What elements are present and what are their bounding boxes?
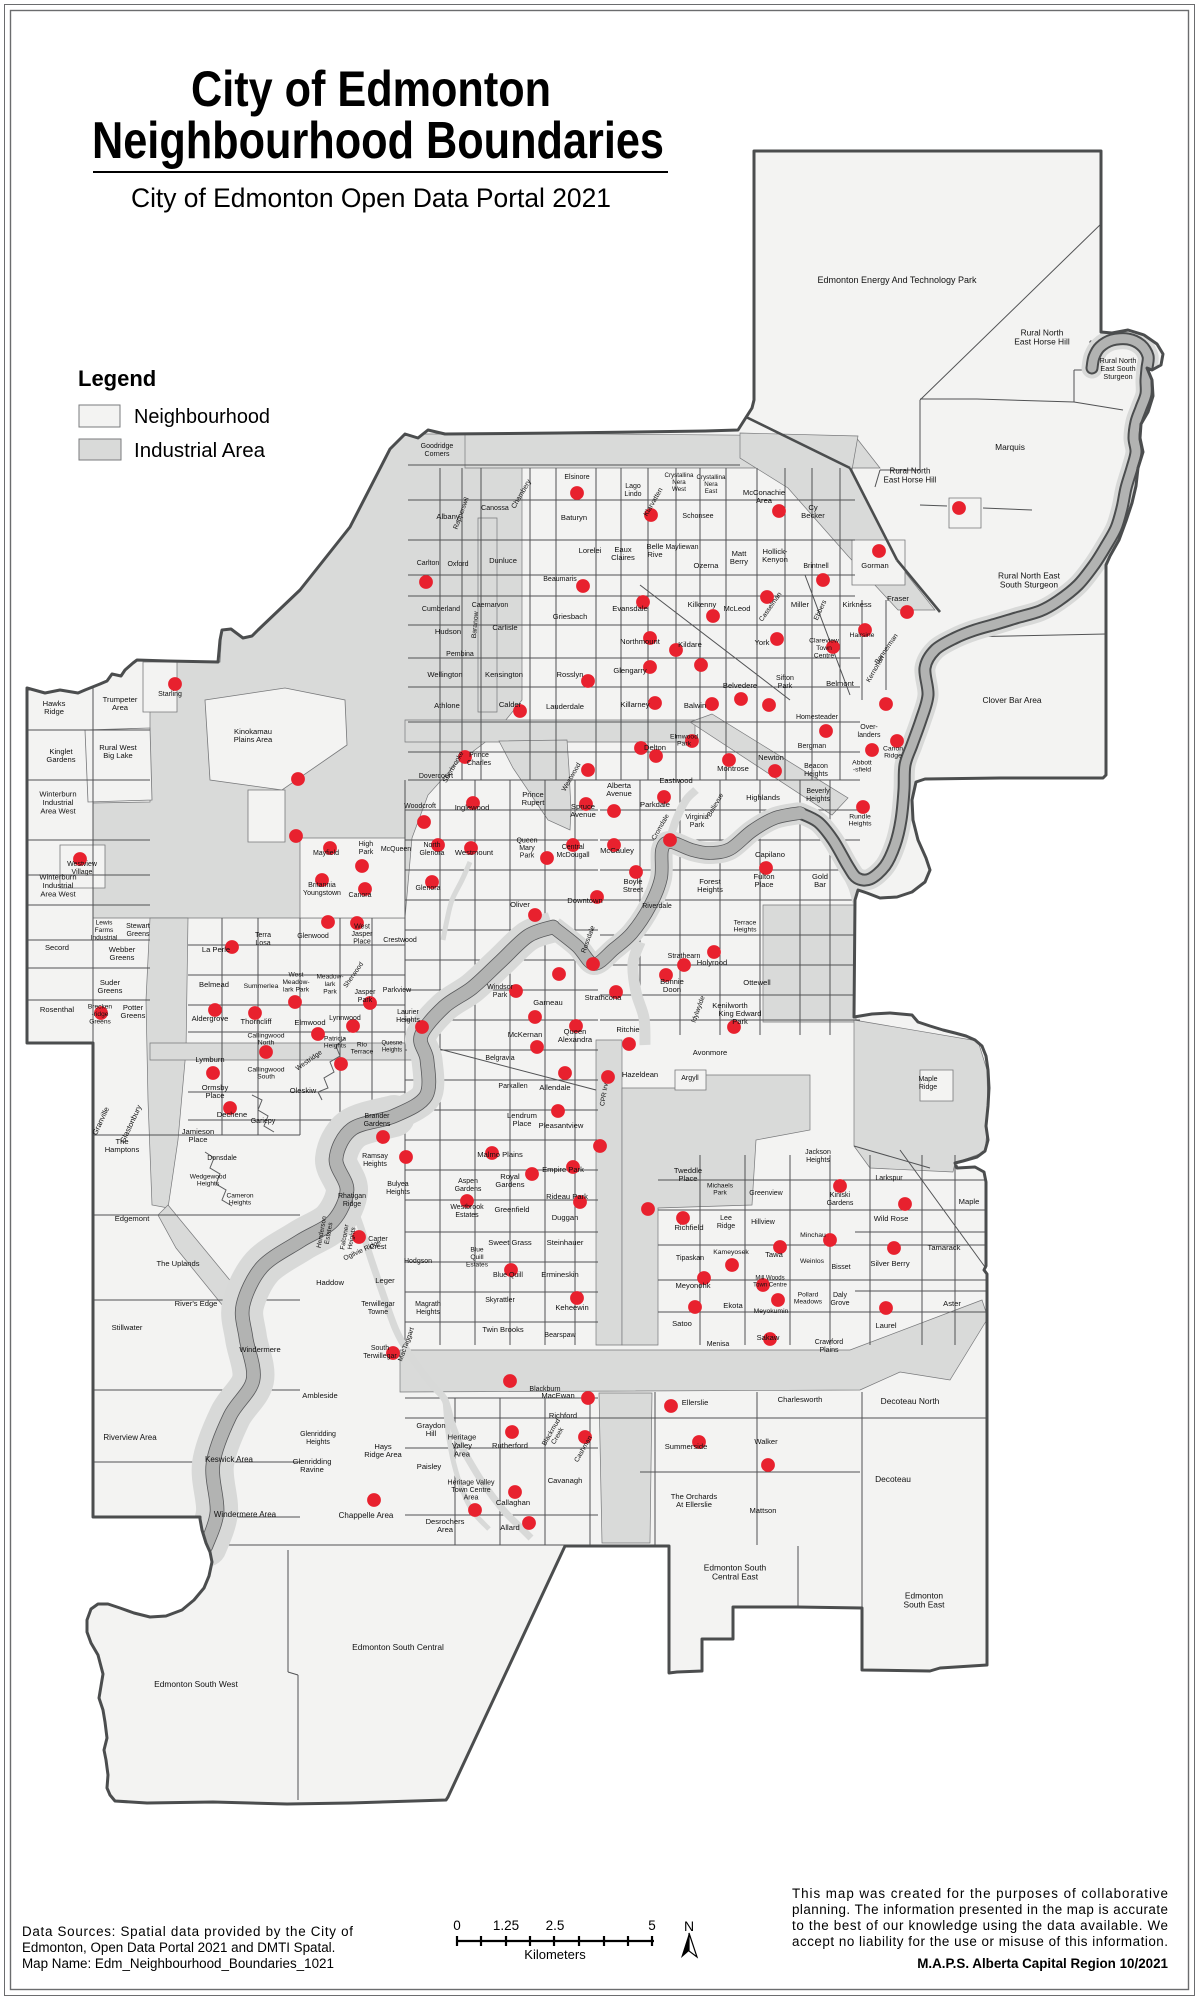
svg-text:EdmontonSouth East: EdmontonSouth East	[904, 1590, 946, 1609]
svg-text:Belgravia: Belgravia	[485, 1055, 514, 1062]
svg-text:Keheewin: Keheewin	[555, 1303, 588, 1312]
svg-text:Hazeldean: Hazeldean	[622, 1070, 658, 1079]
svg-text:Allard: Allard	[500, 1523, 519, 1532]
svg-text:Capilano: Capilano	[755, 850, 785, 859]
svg-text:Ellerslie: Ellerslie	[682, 1398, 709, 1407]
svg-text:MapleRidge: MapleRidge	[918, 1076, 937, 1091]
svg-text:Satoo: Satoo	[672, 1319, 692, 1328]
svg-text:Greenfield: Greenfield	[494, 1205, 529, 1214]
svg-text:Minchau: Minchau	[800, 1232, 826, 1239]
svg-text:Laurel: Laurel	[875, 1321, 896, 1330]
svg-text:Gariepy: Gariepy	[251, 1118, 276, 1125]
svg-text:Kilkenny: Kilkenny	[688, 600, 717, 609]
svg-text:Argyll: Argyll	[681, 1075, 699, 1082]
svg-text:Riverdale: Riverdale	[642, 903, 672, 910]
svg-text:Empire Park: Empire Park	[542, 1165, 584, 1174]
svg-text:GoldBar: GoldBar	[812, 872, 828, 889]
svg-text:Cumberland: Cumberland	[422, 606, 460, 613]
svg-text:Rosenthal: Rosenthal	[40, 1005, 75, 1014]
svg-text:Mattson: Mattson	[749, 1506, 776, 1515]
svg-text:The Uplands: The Uplands	[156, 1259, 199, 1268]
svg-text:Callaghan: Callaghan	[496, 1498, 530, 1507]
svg-text:Richford: Richford	[549, 1411, 577, 1420]
svg-text:QuesneHeights: QuesneHeights	[381, 1041, 403, 1054]
svg-text:CameronHeights: CameronHeights	[226, 1192, 253, 1206]
svg-text:Canora: Canora	[349, 892, 372, 899]
svg-text:Data Sources: Spatial data pro: Data Sources: Spatial data provided by t…	[22, 1924, 353, 1939]
svg-text:0: 0	[453, 1918, 461, 1933]
svg-text:Elmwood: Elmwood	[294, 1018, 325, 1027]
svg-text:Aster: Aster	[943, 1299, 961, 1308]
svg-text:KingletGardens: KingletGardens	[46, 747, 75, 764]
svg-text:SiftonPark: SiftonPark	[776, 675, 794, 690]
svg-text:Mayliewan: Mayliewan	[665, 544, 698, 551]
svg-text:Duggan: Duggan	[552, 1213, 579, 1222]
svg-text:LaurierHeights: LaurierHeights	[396, 1009, 420, 1024]
svg-text:Rural NorthEast Horse Hill: Rural NorthEast Horse Hill	[1014, 327, 1070, 346]
svg-text:BelleRive: BelleRive	[647, 542, 664, 559]
svg-text:WebberGreens: WebberGreens	[109, 945, 136, 962]
svg-text:Edgemont: Edgemont	[115, 1214, 151, 1223]
svg-text:Lynnwood: Lynnwood	[329, 1015, 361, 1022]
svg-text:Crestwood: Crestwood	[383, 937, 417, 944]
svg-text:Blue Quill: Blue Quill	[493, 1272, 523, 1279]
svg-text:Lymburn: Lymburn	[195, 1055, 224, 1064]
svg-text:Rosslyn: Rosslyn	[556, 670, 583, 679]
svg-text:AspenGardens: AspenGardens	[455, 1178, 482, 1193]
svg-text:Brintnell: Brintnell	[803, 563, 829, 570]
svg-text:Kensington: Kensington	[485, 670, 523, 679]
svg-text:BranderGardens: BranderGardens	[364, 1113, 391, 1128]
svg-text:PrinceRupert: PrinceRupert	[522, 790, 546, 807]
svg-text:BulyeaHeights: BulyeaHeights	[386, 1181, 410, 1196]
svg-text:Calder: Calder	[499, 700, 522, 709]
svg-text:CanonRidge: CanonRidge	[883, 745, 903, 759]
svg-text:Kildare: Kildare	[678, 640, 702, 649]
svg-text:Parkview: Parkview	[383, 987, 412, 994]
svg-text:City of Edmonton: City of Edmonton	[191, 61, 551, 117]
svg-text:McKernan: McKernan	[508, 1030, 543, 1039]
svg-text:City of Edmonton Open Data Por: City of Edmonton Open Data Portal 2021	[131, 183, 611, 213]
svg-text:Decoteau: Decoteau	[875, 1474, 911, 1484]
svg-text:Lorelei: Lorelei	[579, 546, 602, 555]
svg-text:Kameyosek: Kameyosek	[713, 1249, 749, 1256]
svg-text:Fraser: Fraser	[887, 594, 909, 603]
svg-text:Riverview Area: Riverview Area	[103, 1433, 157, 1442]
svg-text:BonnieDoon: BonnieDoon	[660, 977, 684, 994]
svg-text:Rural NorthEast Horse Hill: Rural NorthEast Horse Hill	[884, 467, 937, 485]
svg-text:Baturyn: Baturyn	[561, 513, 587, 522]
svg-text:GoodridgeCorners: GoodridgeCorners	[421, 443, 454, 458]
svg-text:Wellington: Wellington	[427, 670, 462, 679]
svg-text:Montrose: Montrose	[717, 764, 749, 773]
svg-text:Walker: Walker	[754, 1437, 778, 1446]
svg-text:to the best of our knowledge u: to the best of our knowledge using the d…	[792, 1918, 1168, 1933]
svg-text:AlbertaAvenue: AlbertaAvenue	[606, 781, 632, 798]
svg-text:Rideau Park: Rideau Park	[546, 1192, 588, 1201]
svg-text:Windermere Area: Windermere Area	[214, 1510, 277, 1519]
svg-text:Mayfield: Mayfield	[313, 850, 339, 857]
svg-text:Avonmore: Avonmore	[693, 1048, 727, 1057]
svg-text:Map Name: Edm_Neighbourhood_Bo: Map Name: Edm_Neighbourhood_Boundaries_1…	[22, 1956, 334, 1971]
svg-text:Northmount: Northmount	[620, 637, 661, 646]
svg-text:Carlton: Carlton	[417, 560, 440, 567]
svg-text:Oleskiw: Oleskiw	[290, 1086, 317, 1095]
svg-text:Rural North EastSouth Sturgeon: Rural North EastSouth Sturgeon	[998, 570, 1061, 589]
svg-text:Elsinore: Elsinore	[564, 474, 589, 481]
svg-text:Charlesworth: Charlesworth	[778, 1395, 823, 1404]
svg-text:PotterGreens: PotterGreens	[121, 1003, 146, 1020]
svg-text:Holyrood: Holyrood	[697, 958, 727, 967]
svg-text:Beaumaris: Beaumaris	[543, 576, 577, 583]
svg-text:Blackburn: Blackburn	[529, 1386, 560, 1393]
svg-text:Edmonton, Open Data Portal 202: Edmonton, Open Data Portal 2021 and DMTI…	[22, 1940, 335, 1955]
svg-text:Malmo Plains: Malmo Plains	[477, 1150, 523, 1159]
svg-text:Starling: Starling	[158, 691, 182, 698]
svg-text:Greenview: Greenview	[749, 1190, 783, 1197]
svg-text:StewartGreens: StewartGreens	[126, 923, 150, 938]
svg-text:Sweet Grass: Sweet Grass	[488, 1238, 532, 1247]
svg-text:Hodgson: Hodgson	[404, 1258, 432, 1265]
svg-text:BeverlyHeights: BeverlyHeights	[806, 788, 830, 803]
svg-text:KinokamauPlains Area: KinokamauPlains Area	[234, 727, 273, 744]
svg-text:N: N	[684, 1918, 694, 1934]
svg-text:Neighbourhood: Neighbourhood	[134, 406, 270, 428]
svg-text:SuderGreens: SuderGreens	[98, 978, 123, 995]
svg-text:Pembina: Pembina	[446, 651, 474, 658]
svg-text:Haddow: Haddow	[316, 1278, 344, 1287]
svg-text:Larkspur: Larkspur	[875, 1175, 903, 1182]
svg-text:Leger: Leger	[375, 1276, 395, 1285]
svg-text:Eastwood: Eastwood	[659, 776, 692, 785]
svg-text:Parkdale: Parkdale	[640, 800, 670, 809]
svg-text:Gorman: Gorman	[861, 561, 888, 570]
svg-text:MagrathHeights: MagrathHeights	[415, 1301, 441, 1316]
svg-text:Belmead: Belmead	[199, 980, 229, 989]
svg-text:Canossa: Canossa	[481, 505, 509, 512]
svg-text:Dechene: Dechene	[217, 1110, 247, 1119]
svg-text:Decoteau North: Decoteau North	[881, 1396, 940, 1406]
svg-text:Edmonton Energy And Technology: Edmonton Energy And Technology Park	[818, 275, 977, 285]
svg-text:TerraLosa: TerraLosa	[255, 932, 271, 947]
svg-text:Inglewood: Inglewood	[455, 803, 490, 812]
svg-text:Richfield: Richfield	[674, 1223, 703, 1232]
svg-text:BoyleStreet: BoyleStreet	[623, 877, 644, 894]
svg-text:Athlone: Athlone	[434, 701, 460, 710]
svg-text:Bergman: Bergman	[798, 743, 827, 750]
svg-text:Balwin: Balwin	[684, 701, 706, 710]
svg-text:accept no liability for the us: accept no liability for the use or misus…	[792, 1934, 1168, 1949]
svg-text:Steinhauer: Steinhauer	[547, 1238, 584, 1247]
svg-text:Stillwater: Stillwater	[112, 1323, 143, 1332]
svg-text:WestJasperPlace: WestJasperPlace	[351, 923, 373, 945]
svg-text:JacksonHeights: JacksonHeights	[805, 1149, 831, 1164]
svg-text:The OrchardsAt Ellerslie: The OrchardsAt Ellerslie	[671, 1492, 718, 1509]
svg-text:1.25: 1.25	[493, 1918, 519, 1933]
svg-text:Rural NorthEast SouthSturgeon: Rural NorthEast SouthSturgeon	[1100, 356, 1137, 381]
svg-text:Secord: Secord	[45, 943, 69, 952]
svg-text:Ekota: Ekota	[723, 1301, 743, 1310]
svg-text:McCauley: McCauley	[600, 846, 634, 855]
svg-text:MattBerry: MattBerry	[730, 549, 748, 566]
svg-text:Hairsine: Hairsine	[850, 632, 875, 639]
svg-text:Griesbach: Griesbach	[553, 612, 588, 621]
svg-text:Ermineskin: Ermineskin	[541, 1270, 579, 1279]
svg-text:Edmonton South West: Edmonton South West	[154, 1679, 238, 1689]
svg-text:Strathearn: Strathearn	[668, 953, 701, 960]
svg-text:HawksRidge: HawksRidge	[43, 699, 66, 716]
svg-text:WinterburnIndustrialArea West: WinterburnIndustrialArea West	[39, 790, 76, 816]
svg-text:Ottewell: Ottewell	[743, 978, 771, 987]
svg-text:Belmont: Belmont	[826, 679, 855, 688]
svg-text:Tipaskan: Tipaskan	[676, 1255, 704, 1262]
svg-text:Glenwood: Glenwood	[297, 933, 329, 940]
svg-text:Meyokumin: Meyokumin	[754, 1308, 789, 1315]
svg-text:Oliver: Oliver	[510, 900, 530, 909]
svg-text:Meyonohk: Meyonohk	[675, 1281, 710, 1290]
svg-text:Windermere: Windermere	[239, 1345, 280, 1354]
svg-text:Hollick-Kenyon: Hollick-Kenyon	[762, 547, 788, 564]
svg-text:Summerside: Summerside	[665, 1442, 708, 1451]
svg-text:Chappelle Area: Chappelle Area	[339, 1511, 394, 1520]
svg-text:Homesteader: Homesteader	[796, 714, 839, 721]
svg-text:Menisa: Menisa	[707, 1341, 730, 1348]
svg-text:KiniskiGardens: KiniskiGardens	[827, 1192, 854, 1207]
svg-text:Edmonton SouthCentral East: Edmonton SouthCentral East	[704, 1562, 767, 1581]
svg-text:EauxClaires: EauxClaires	[611, 545, 635, 562]
svg-text:Paisley: Paisley	[417, 1462, 442, 1471]
svg-text:PatriciaHeights: PatriciaHeights	[324, 1035, 347, 1049]
svg-text:OrmsbyPlace: OrmsbyPlace	[202, 1083, 229, 1100]
svg-text:Maple: Maple	[959, 1197, 980, 1206]
svg-text:DalyGrove: DalyGrove	[830, 1292, 849, 1307]
svg-text:Oxford: Oxford	[447, 561, 468, 568]
svg-text:Clover Bar Area: Clover Bar Area	[982, 695, 1041, 705]
svg-text:Weinlos: Weinlos	[800, 1258, 825, 1265]
svg-text:Rural WestBig Lake: Rural WestBig Lake	[99, 743, 137, 760]
svg-text:Westmount: Westmount	[455, 848, 494, 857]
svg-text:Summerlea: Summerlea	[244, 983, 279, 990]
svg-text:LagoLindo: LagoLindo	[624, 483, 641, 498]
svg-text:York: York	[755, 638, 770, 647]
svg-text:Lauderdale: Lauderdale	[546, 702, 584, 711]
svg-text:Mill WoodsTown Centre: Mill WoodsTown Centre	[753, 1276, 787, 1289]
svg-text:FultonPlace: FultonPlace	[753, 872, 774, 889]
svg-text:Schonsee: Schonsee	[682, 513, 713, 520]
svg-text:Edmonton South Central: Edmonton South Central	[352, 1642, 444, 1652]
svg-text:Ambleside: Ambleside	[302, 1391, 337, 1400]
svg-text:Twin Brooks: Twin Brooks	[482, 1325, 524, 1334]
svg-text:Highlands: Highlands	[746, 793, 780, 802]
svg-text:Allendale: Allendale	[539, 1083, 570, 1092]
svg-text:River's Edge: River's Edge	[175, 1299, 218, 1308]
svg-text:Pleasantview: Pleasantview	[539, 1121, 584, 1130]
svg-text:Industrial Area: Industrial Area	[134, 440, 266, 462]
svg-text:2.5: 2.5	[546, 1918, 565, 1933]
svg-text:Parkallen: Parkallen	[498, 1083, 527, 1090]
svg-text:planning. The information pres: planning. The information presented in t…	[792, 1902, 1168, 1917]
svg-text:Bearspaw: Bearspaw	[544, 1332, 576, 1339]
svg-text:Cavanagh: Cavanagh	[548, 1476, 583, 1485]
svg-text:Evansdale: Evansdale	[612, 604, 647, 613]
svg-text:Silver Berry: Silver Berry	[870, 1259, 909, 1268]
svg-text:Ritchie: Ritchie	[616, 1025, 639, 1034]
svg-text:Downtown: Downtown	[567, 896, 602, 905]
svg-text:Dunluce: Dunluce	[489, 556, 517, 565]
svg-text:Killarney: Killarney	[620, 700, 649, 709]
svg-text:Strathcona: Strathcona	[585, 993, 623, 1002]
svg-text:McQueen: McQueen	[381, 846, 411, 853]
svg-text:Ozerna: Ozerna	[694, 561, 720, 570]
svg-text:M.A.P.S. Alberta Capital Regio: M.A.P.S. Alberta Capital Region 10/2021	[917, 1956, 1168, 1971]
svg-text:Wild Rose: Wild Rose	[874, 1214, 909, 1223]
svg-text:Newton: Newton	[758, 753, 784, 762]
svg-text:Legend: Legend	[78, 366, 156, 391]
svg-text:Donsdale: Donsdale	[207, 1155, 237, 1162]
svg-text:Garneau: Garneau	[533, 998, 563, 1007]
svg-text:5: 5	[648, 1918, 656, 1933]
svg-text:Hillview: Hillview	[751, 1219, 776, 1226]
svg-text:Skyrattler: Skyrattler	[485, 1297, 515, 1304]
svg-text:BritanniaYoungstown: BritanniaYoungstown	[303, 882, 341, 897]
svg-text:Woodcroft: Woodcroft	[404, 803, 436, 810]
svg-text:Delton: Delton	[644, 743, 666, 752]
svg-text:Rutherford: Rutherford	[492, 1441, 528, 1450]
svg-text:Caernarvon: Caernarvon	[472, 602, 509, 609]
svg-text:RundleHeights: RundleHeights	[848, 813, 872, 827]
svg-text:WinterburnIndustrialArea West: WinterburnIndustrialArea West	[39, 873, 76, 899]
svg-text:Kirkness: Kirkness	[842, 600, 871, 609]
svg-text:Hudson: Hudson	[435, 627, 461, 636]
svg-text:ForestHeights: ForestHeights	[697, 877, 723, 894]
svg-text:Miller: Miller	[791, 600, 810, 609]
svg-text:Aldergrove: Aldergrove	[192, 1014, 229, 1023]
svg-text:Sakaw: Sakaw	[757, 1333, 780, 1342]
svg-text:HighPark: HighPark	[359, 841, 374, 856]
svg-text:RamsayHeights: RamsayHeights	[362, 1153, 388, 1168]
svg-text:Carlisle: Carlisle	[492, 623, 517, 632]
svg-text:TerraceHeights: TerraceHeights	[733, 919, 757, 933]
svg-text:Marquis: Marquis	[995, 442, 1025, 452]
svg-text:Bisset: Bisset	[831, 1264, 850, 1271]
svg-text:Over-landers: Over-landers	[858, 724, 881, 739]
svg-text:Thorncliff: Thorncliff	[240, 1017, 272, 1026]
svg-text:Glenora: Glenora	[416, 885, 441, 892]
svg-text:Kilometers: Kilometers	[524, 1947, 586, 1962]
svg-text:BeaconHeights: BeaconHeights	[804, 763, 828, 778]
svg-text:SpruceAvenue: SpruceAvenue	[570, 802, 596, 819]
svg-text:PrinceCharles: PrinceCharles	[467, 752, 492, 767]
svg-text:Abbott-sfield: Abbott-sfield	[852, 759, 872, 773]
svg-text:Neighbourhood Boundaries: Neighbourhood Boundaries	[92, 112, 664, 170]
svg-text:This map was created for the p: This map was created for the purposes of…	[792, 1886, 1168, 1901]
svg-text:Keswick Area: Keswick Area	[205, 1455, 254, 1464]
svg-text:Belvedere: Belvedere	[723, 681, 757, 690]
svg-text:McLeod: McLeod	[723, 604, 750, 613]
svg-text:Glengarry: Glengarry	[613, 666, 647, 675]
svg-text:Tawa: Tawa	[765, 1250, 784, 1259]
svg-text:La Perle: La Perle	[202, 945, 230, 954]
svg-text:Tamarack: Tamarack	[928, 1243, 961, 1252]
